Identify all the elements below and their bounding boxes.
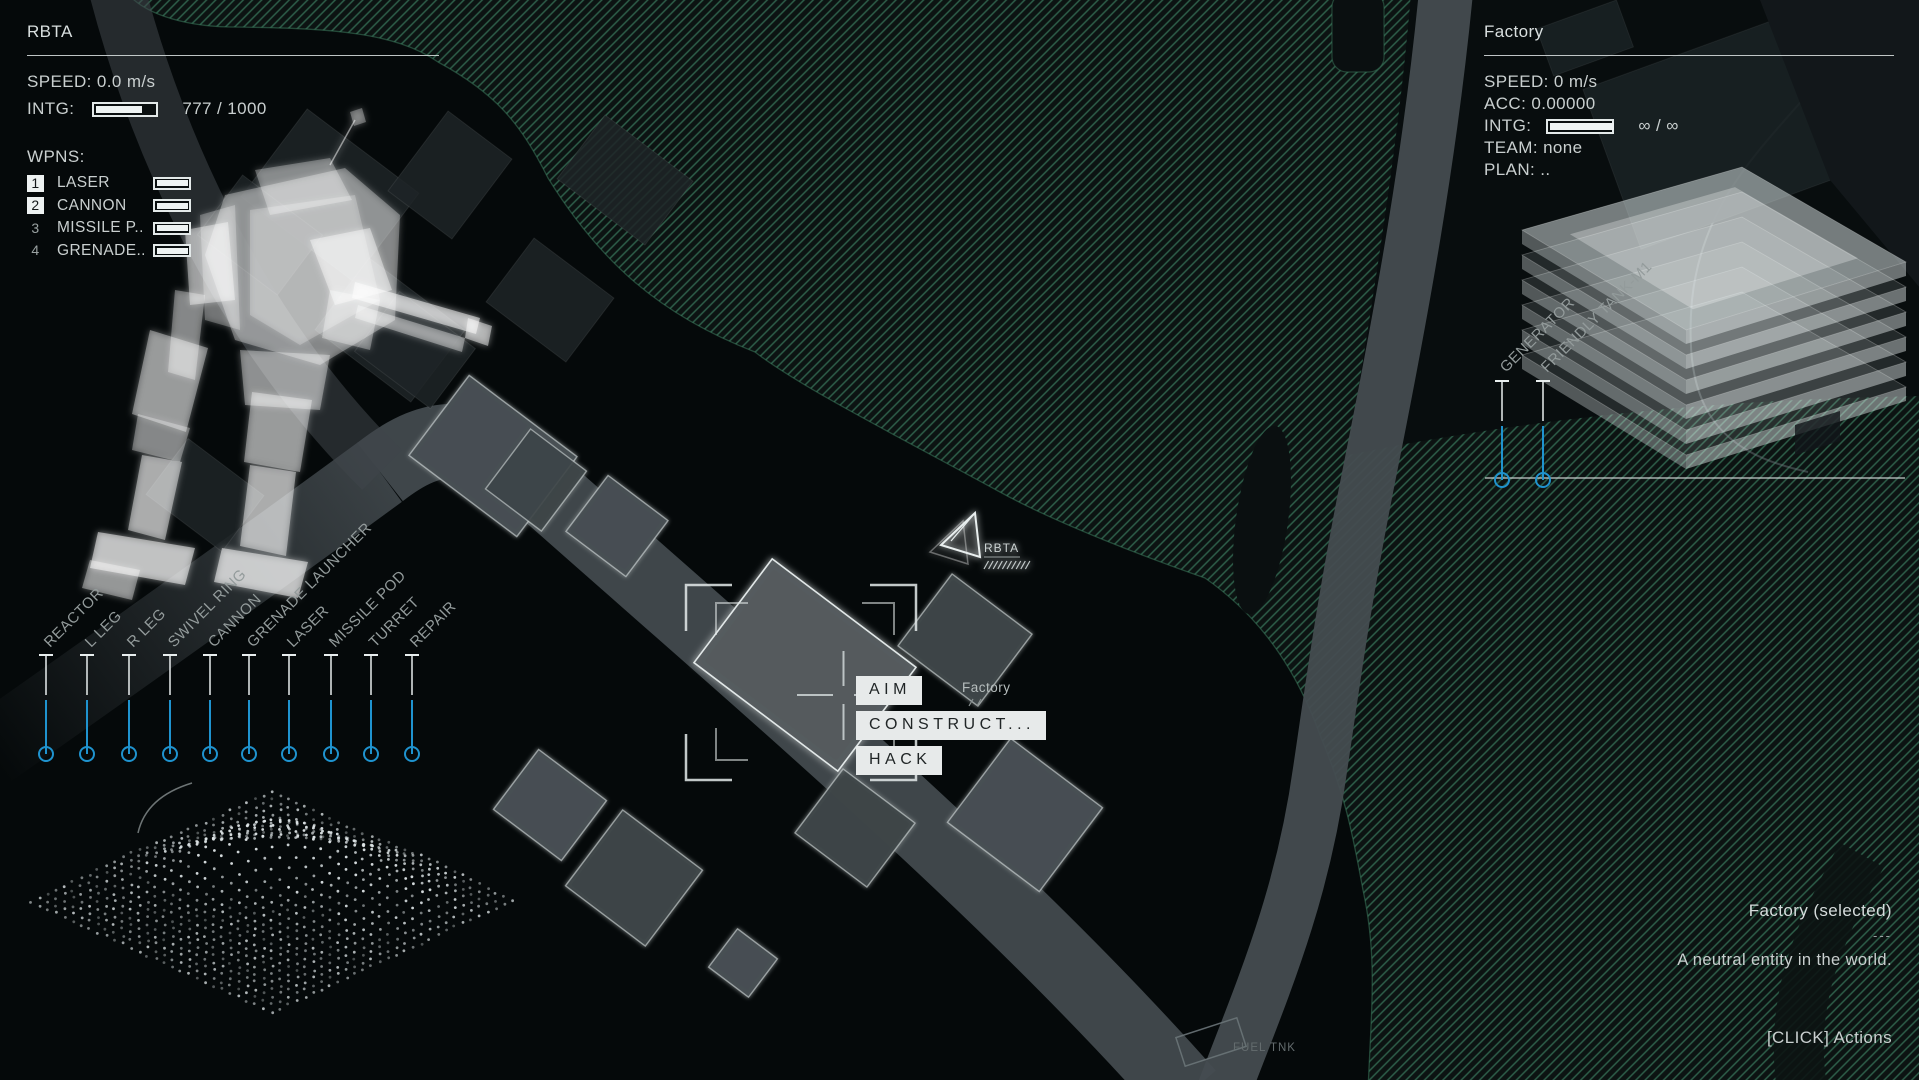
construct-button[interactable]: CONSTRUCT... (856, 711, 1046, 740)
selection-description: A neutral entity in the world. (1677, 951, 1892, 970)
team-readout: TEAM: none (1484, 137, 1894, 159)
weapon-row[interactable]: 1 LASER (27, 172, 439, 195)
mech-part-shape (128, 455, 182, 540)
weapons-header: WPNS: (27, 146, 439, 168)
unit-marker-rbta[interactable]: RBTA (930, 513, 1030, 569)
weapon-name: CANNON (57, 197, 145, 215)
building[interactable] (709, 929, 778, 997)
speed-readout: SPEED: 0.0 m/s (27, 71, 439, 93)
weapon-name: MISSILE P... (57, 219, 145, 237)
unit-arrow-icon (941, 513, 980, 557)
actions-hint: [CLICK] Actions (1767, 1028, 1892, 1048)
target-status-panel: Factory SPEED: 0 m/s ACC: 0.00000 INTG: … (1484, 22, 1894, 181)
terrain-dot-grid (29, 790, 514, 1014)
mech-part-shape (240, 465, 296, 556)
action-menu: AIM CONSTRUCT... HACK (856, 676, 1046, 781)
divider (27, 55, 439, 56)
target-map-label: Factory (962, 680, 1011, 695)
weapon-name: LASER (57, 174, 145, 192)
integrity-label: INTG: (1484, 115, 1531, 137)
divider (1484, 55, 1894, 56)
selection-title: Factory (selected) (1677, 901, 1892, 921)
integrity-label: INTG: (27, 98, 74, 120)
weapon-ammo-bar (153, 244, 191, 257)
integrity-value: 777 / 1000 (182, 98, 266, 120)
weapon-slot-number: 3 (27, 220, 44, 237)
weapon-slot-number: 2 (27, 197, 44, 214)
hatch-hole (1332, 0, 1384, 72)
integrity-value: ∞ / ∞ (1638, 115, 1678, 137)
unit-status-panel: RBTA SPEED: 0.0 m/s INTG: 777 / 1000 WPN… (27, 22, 439, 262)
weapon-ammo-bar (153, 199, 191, 212)
building[interactable] (566, 810, 703, 946)
unit-marker-ticks (984, 561, 1030, 569)
plan-readout: PLAN: .. (1484, 159, 1894, 181)
weapon-row[interactable]: 3 MISSILE P... (27, 217, 439, 240)
integrity-bar (1546, 119, 1614, 134)
weapon-row[interactable]: 2 CANNON (27, 195, 439, 218)
building[interactable] (494, 750, 607, 861)
fuel-tank-label: FUEL TNK (1233, 1042, 1296, 1054)
acceleration-readout: ACC: 0.00000 (1484, 93, 1894, 115)
game-viewport: REACTORL LEGR LEGSWIVEL RINGCANNONGRENAD… (0, 0, 1919, 1080)
speed-readout: SPEED: 0 m/s (1484, 71, 1894, 93)
aim-button[interactable]: AIM (856, 676, 922, 705)
weapon-ammo-bar (153, 222, 191, 235)
integrity-bar (92, 102, 158, 117)
panel-title: Factory (1484, 22, 1894, 42)
weapon-name: GRENADE... (57, 242, 145, 260)
panel-title: RBTA (27, 22, 439, 42)
weapons-section: WPNS: 1 LASER 2 CANNON 3 MISSILE P... 4 … (27, 146, 439, 262)
weapon-slot-number: 4 (27, 242, 44, 259)
selection-info-panel: Factory (selected) --- A neutral entity … (1677, 901, 1892, 970)
mech-part-shape (244, 392, 312, 472)
terrain-arc (138, 783, 192, 833)
weapon-ammo-bar (153, 177, 191, 190)
weapon-slot-number: 1 (27, 175, 44, 192)
background-structure (486, 238, 614, 362)
unit-marker-label: RBTA (984, 541, 1019, 555)
hack-button[interactable]: HACK (856, 746, 942, 775)
mech-part-shape (465, 318, 492, 346)
selection-divider: --- (1677, 928, 1892, 943)
weapon-row[interactable]: 4 GRENADE... (27, 240, 439, 263)
